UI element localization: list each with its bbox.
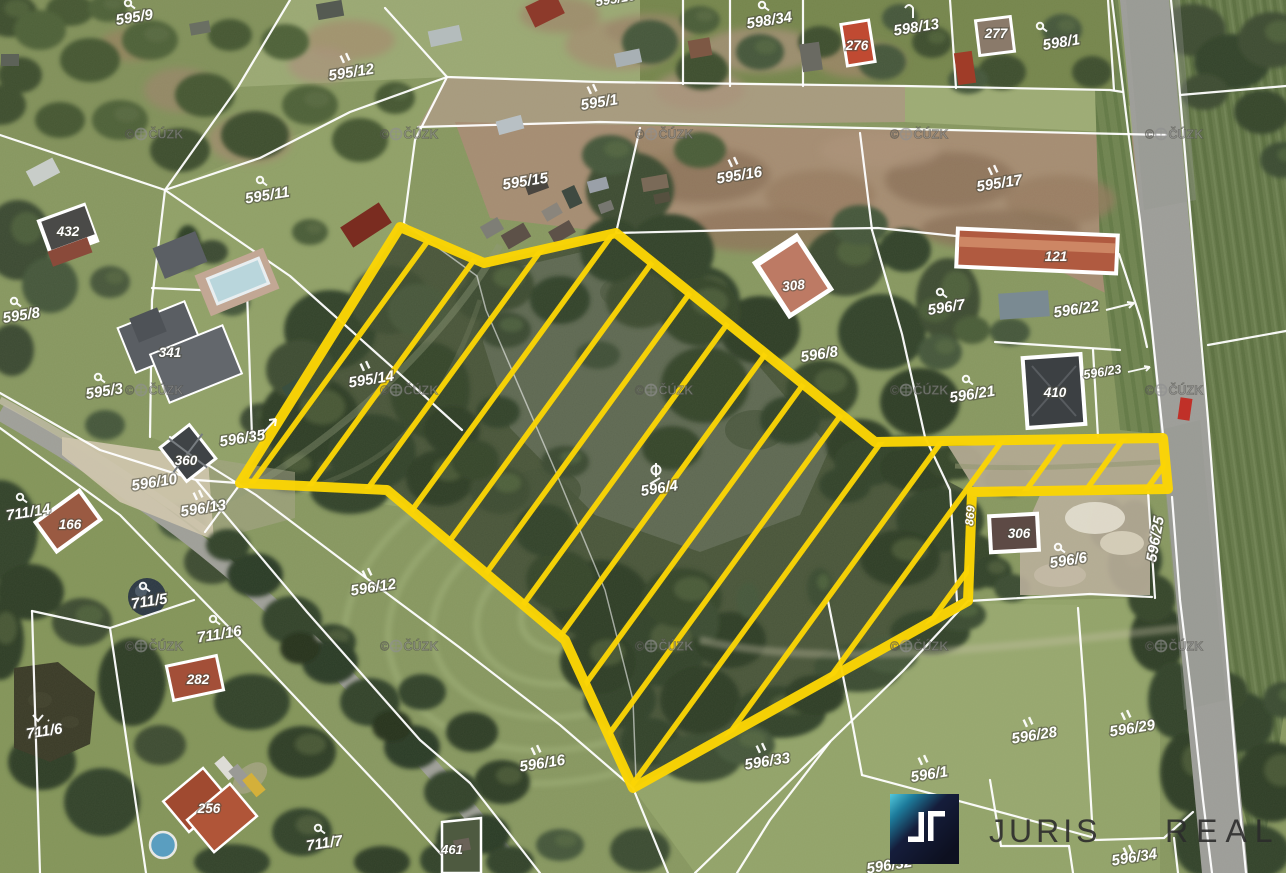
svg-text:256: 256 — [197, 801, 221, 816]
svg-text:869: 869 — [962, 505, 978, 526]
svg-text:277: 277 — [984, 26, 1009, 41]
svg-text:166: 166 — [59, 517, 82, 532]
svg-text:360: 360 — [175, 453, 198, 468]
svg-text:121: 121 — [1045, 249, 1068, 264]
svg-text:461: 461 — [440, 842, 463, 857]
svg-text:REAL: REAL — [1165, 813, 1281, 849]
svg-text:308: 308 — [782, 277, 806, 294]
svg-text:JURIS: JURIS — [989, 813, 1101, 849]
svg-text:341: 341 — [159, 345, 182, 360]
svg-text:306: 306 — [1008, 526, 1031, 541]
svg-text:410: 410 — [1043, 385, 1067, 400]
svg-text:282: 282 — [186, 672, 210, 687]
svg-text:276: 276 — [845, 38, 869, 53]
svg-text:432: 432 — [56, 224, 80, 239]
